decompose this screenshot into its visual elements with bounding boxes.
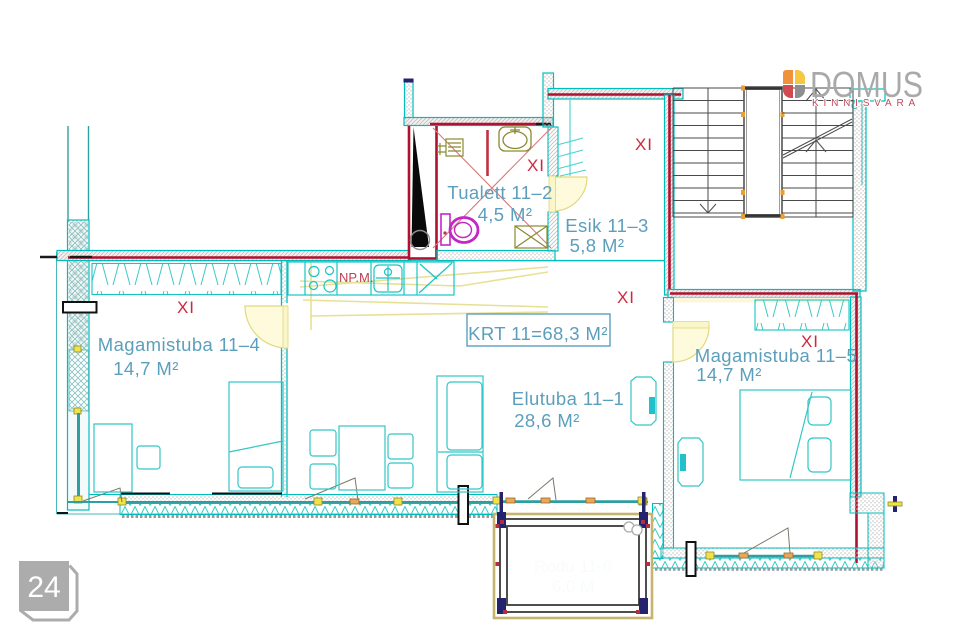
svg-text:Rodu 11-6: Rodu 11-6 bbox=[534, 557, 612, 576]
svg-text:NP.M.: NP.M. bbox=[339, 270, 373, 285]
svg-text:XI: XI bbox=[635, 135, 653, 154]
svg-text:XI: XI bbox=[527, 156, 545, 175]
svg-text:XI: XI bbox=[177, 298, 195, 317]
svg-text:14,7 M²: 14,7 M² bbox=[113, 358, 179, 379]
svg-text:Tualett 11–2: Tualett 11–2 bbox=[447, 182, 553, 203]
svg-text:KINNISVARA: KINNISVARA bbox=[812, 97, 920, 109]
svg-text:Elutuba 11–1: Elutuba 11–1 bbox=[512, 388, 624, 409]
svg-text:XI: XI bbox=[617, 288, 635, 307]
svg-text:28,6 M²: 28,6 M² bbox=[514, 410, 580, 431]
svg-text:Magamistuba 11–4: Magamistuba 11–4 bbox=[98, 334, 260, 355]
svg-text:Magamistuba 11–5: Magamistuba 11–5 bbox=[695, 345, 857, 366]
svg-text:4,5 M²: 4,5 M² bbox=[478, 204, 533, 225]
svg-text:XI: XI bbox=[801, 332, 819, 351]
svg-text:14,7 M²: 14,7 M² bbox=[696, 364, 762, 385]
svg-text:6,0 M: 6,0 M bbox=[552, 577, 595, 596]
svg-text:24: 24 bbox=[27, 571, 60, 604]
svg-text:KRT 11=68,3 M²: KRT 11=68,3 M² bbox=[468, 323, 608, 344]
svg-text:5,8 M²: 5,8 M² bbox=[570, 235, 625, 256]
svg-text:Esik 11–3: Esik 11–3 bbox=[565, 215, 648, 236]
